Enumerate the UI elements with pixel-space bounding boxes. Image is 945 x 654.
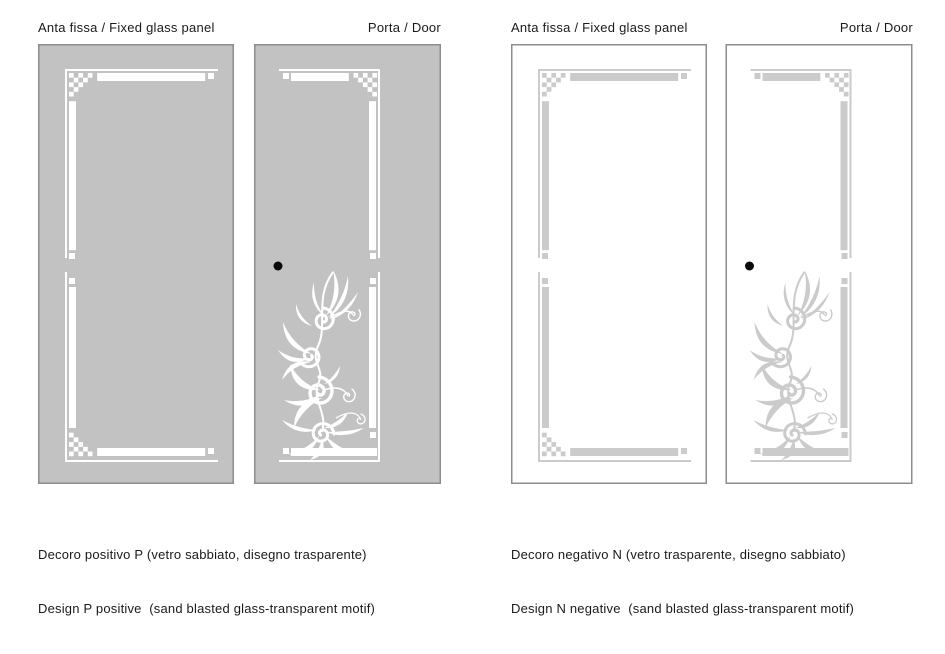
fixed-panel-label: Anta fissa / Fixed glass panel xyxy=(511,20,688,35)
door-handle-dot xyxy=(745,262,754,271)
door-label: Porta / Door xyxy=(368,20,441,35)
negative-pair-header: Anta fissa / Fixed glass panel Porta / D… xyxy=(511,20,913,35)
fixed-panel-label: Anta fissa / Fixed glass panel xyxy=(38,20,215,35)
negative-caption: Decoro negativo N (vetro trasparente, di… xyxy=(511,510,854,654)
caption-line-italian: Decoro negativo N (vetro trasparente, di… xyxy=(511,546,854,564)
door-label: Porta / Door xyxy=(840,20,913,35)
glass-pane xyxy=(255,45,441,484)
fixed-glass-panel-positive xyxy=(38,44,234,484)
fixed-glass-panel-negative xyxy=(511,44,707,484)
positive-caption: Decoro positivo P (vetro sabbiato, diseg… xyxy=(38,510,375,654)
glass-pane xyxy=(512,45,707,484)
door-panel-positive xyxy=(254,44,441,484)
positive-pair-header: Anta fissa / Fixed glass panel Porta / D… xyxy=(38,20,441,35)
door-handle-dot xyxy=(274,262,283,271)
catalog-page: Anta fissa / Fixed glass panel Porta / D… xyxy=(0,0,945,561)
door-panel-negative xyxy=(725,44,913,484)
caption-line-english: Design P positive (sand blasted glass-tr… xyxy=(38,600,375,618)
glass-pane xyxy=(726,45,912,484)
caption-line-italian: Decoro positivo P (vetro sabbiato, diseg… xyxy=(38,546,375,564)
caption-line-english: Design N negative (sand blasted glass-tr… xyxy=(511,600,854,618)
glass-pane xyxy=(39,45,234,484)
